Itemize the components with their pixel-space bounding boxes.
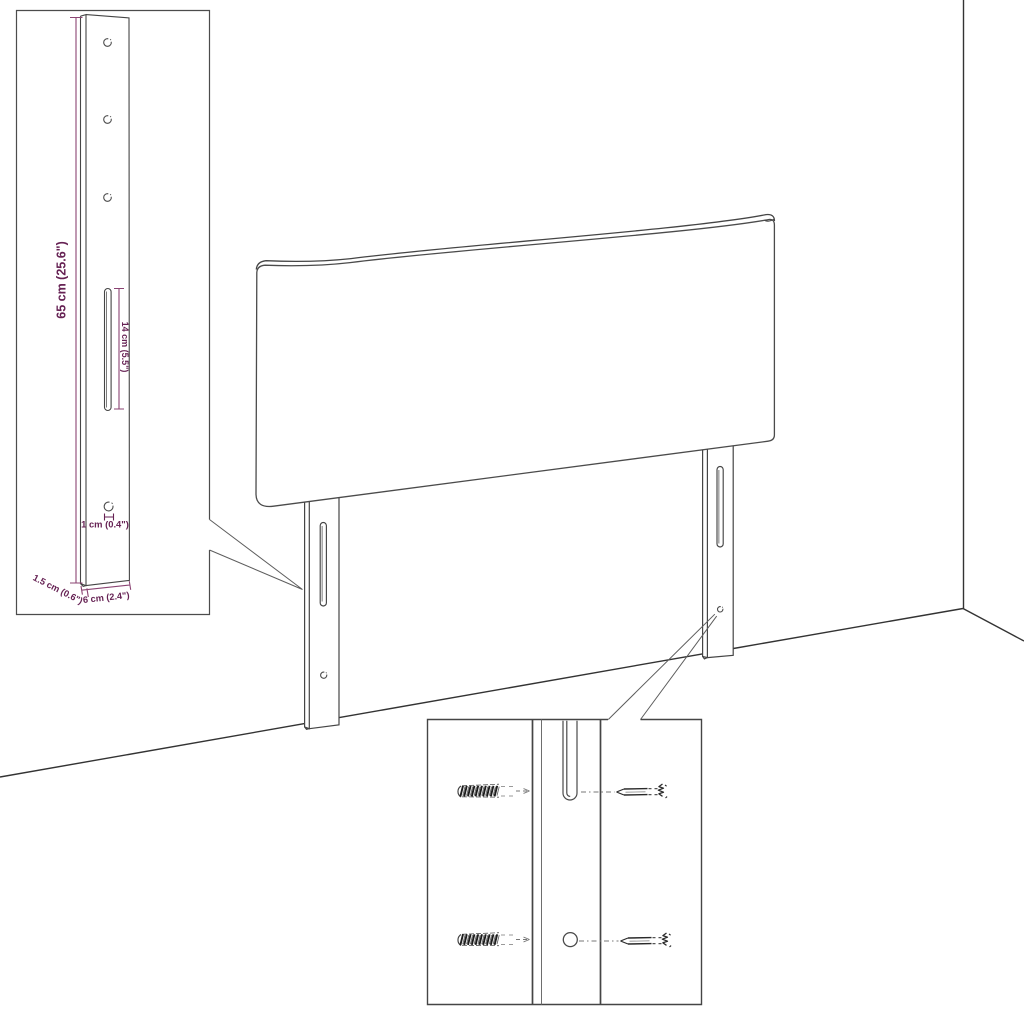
svg-text:14 cm (5.5"): 14 cm (5.5")	[120, 322, 130, 373]
svg-text:65 cm (25.6"): 65 cm (25.6")	[55, 241, 69, 319]
svg-text:1 cm (0.4"): 1 cm (0.4")	[81, 519, 129, 530]
